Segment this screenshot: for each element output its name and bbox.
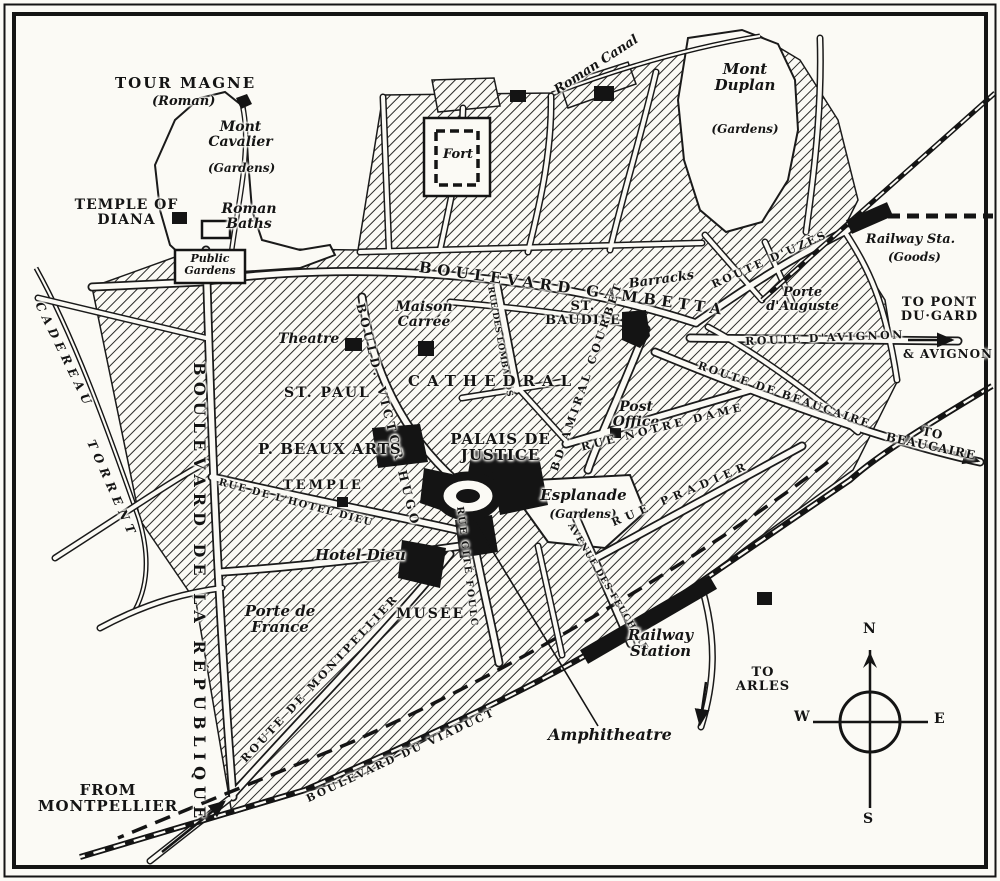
compass-west-label: W (794, 710, 811, 725)
label-maison-carree: Maison Carrée (388, 300, 460, 329)
label-boulevard-republique: BOULEVARD DE LA RÉPUBLIQUE (190, 362, 207, 824)
compass-south-label: S (863, 812, 874, 827)
label-avignon-dest: & AVIGNON (903, 348, 993, 361)
label-mont-duplan-sub: (Gardens) (700, 123, 790, 136)
label-beaux-arts: P. BEAUX ARTS (258, 442, 402, 458)
label-from-montpellier: FROM MONTPELLIER (28, 783, 188, 815)
label-to-arles: TO ARLES (728, 666, 798, 693)
label-tour-magne-sub: (Roman) (152, 95, 215, 109)
label-to-pont-du-gard: TO PONT DU·GARD (897, 296, 982, 323)
label-fort: Fort (443, 148, 473, 162)
label-cathedral: CATHEDRAL (408, 374, 578, 390)
label-mont-duplan: Mont Duplan (700, 62, 790, 94)
amphitheatre-shape (439, 476, 497, 516)
label-theatre: Theatre (278, 332, 339, 347)
label-railway-goods-sub: (Goods) (888, 251, 941, 264)
label-roman-baths: Roman Baths (216, 202, 282, 231)
label-temple-diana: TEMPLE OF DIANA (74, 198, 179, 227)
label-musee: MUSÉE (396, 607, 465, 622)
maison-carree-building (418, 341, 434, 356)
label-st-paul: ST. PAUL (284, 386, 371, 401)
label-mont-cavalier-sub: (Gardens) (208, 162, 275, 175)
musee-annex-building (757, 592, 772, 605)
compass-north-label: N (863, 622, 877, 637)
label-porte-france: Porte de France (240, 604, 320, 636)
label-tour-magne: TOUR MAGNE (115, 76, 256, 92)
label-railway-station: Railway Station (618, 628, 703, 660)
label-palais-justice: PALAIS DE JUSTICE (448, 432, 553, 464)
decor-block-2 (594, 86, 614, 101)
compass-east-label: E (934, 712, 946, 727)
label-railway-goods: Railway Sta. (853, 233, 968, 247)
label-hotel-dieu: Hotel Dieu (315, 548, 406, 564)
label-public-gardens: Public Gardens (177, 253, 243, 276)
label-amphitheatre: Amphitheatre (548, 727, 672, 744)
label-temple: TEMPLE (283, 479, 364, 493)
theatre-building (345, 338, 362, 351)
decor-block-1 (510, 90, 526, 102)
map-page: TOUR MAGNE (Roman) Mont Cavalier (Garden… (0, 0, 1000, 881)
label-esplanade: Esplanade (536, 488, 631, 504)
label-porte-auguste: Porte d'Auguste (760, 286, 845, 313)
temple-building (337, 497, 348, 507)
label-mont-cavalier: Mont Cavalier (198, 120, 283, 149)
